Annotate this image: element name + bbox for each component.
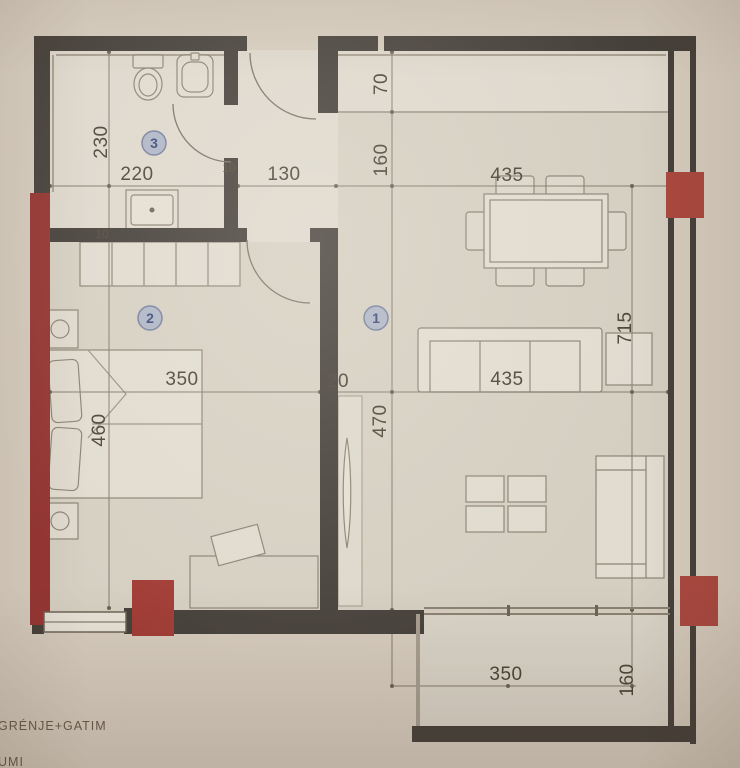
red-wall-left — [30, 193, 50, 625]
red-column-right-bottom — [680, 576, 718, 626]
left-wall — [34, 36, 50, 196]
legend-line2: UMI — [0, 755, 24, 768]
room-badge-bathroom: 3 — [142, 131, 166, 155]
top-wall — [34, 36, 247, 51]
bedroom-top-wall — [38, 228, 247, 242]
legend: GRÉNJE+GATIM UMI — [0, 718, 107, 768]
dim-entry: 160 — [371, 143, 392, 176]
dim-sofa-line: 435 — [490, 369, 523, 390]
floor-plan-drawing: 230 220 130 70 160 435 715 350 20 435 46… — [0, 0, 740, 768]
dim-living-width: 435 — [490, 165, 523, 186]
balcony-wall — [412, 726, 694, 742]
bedroom-top-wall — [310, 228, 338, 242]
dim-bedroom-depth: 460 — [89, 413, 110, 446]
sink-icon — [177, 53, 213, 97]
dim-balcony-width: 350 — [489, 664, 522, 685]
dim-balcony-depth: 160 — [617, 663, 638, 696]
shower-tray-icon — [126, 190, 178, 230]
balcony-side-wall — [416, 614, 420, 726]
room-number-bedroom: 2 — [146, 310, 154, 326]
room-number-living: 1 — [372, 310, 380, 326]
red-column-right-top — [666, 172, 704, 218]
room-badge-bedroom: 2 — [138, 306, 162, 330]
dim-wall-small: 10 — [95, 227, 109, 241]
legend-line1: GRÉNJE+GATIM — [0, 718, 107, 733]
sofa-right-icon — [596, 456, 664, 578]
bathroom-wall — [224, 51, 238, 105]
dim-vestibule: 70 — [371, 73, 392, 95]
toilet-icon — [133, 55, 163, 100]
room-badge-living: 1 — [364, 306, 388, 330]
radiator-icon — [338, 396, 362, 606]
right-wall-outer — [690, 44, 696, 744]
dim-wall-thickness: 20 — [327, 371, 349, 392]
top-wall — [318, 36, 378, 51]
center-wall — [320, 240, 338, 612]
bottom-wall — [170, 610, 424, 634]
room-number-bathroom: 3 — [150, 135, 158, 151]
dim-hall-width: 130 — [267, 164, 300, 185]
dim-bedroom-width: 350 — [165, 369, 198, 390]
red-column-bottom — [132, 580, 174, 636]
dim-living-depth: 470 — [370, 404, 391, 437]
dim-living-length: 715 — [615, 311, 636, 344]
dim-bath-width: 220 — [120, 164, 153, 185]
vestibule-wall — [318, 51, 338, 113]
right-wall-inner — [668, 51, 674, 742]
wardrobe-icon — [80, 242, 240, 286]
dim-wall-small: 10 — [222, 161, 236, 175]
top-wall — [384, 36, 696, 51]
floor-plan-photo: 230 220 130 70 160 435 715 350 20 435 46… — [0, 0, 740, 768]
dim-bath-depth: 230 — [91, 125, 112, 158]
